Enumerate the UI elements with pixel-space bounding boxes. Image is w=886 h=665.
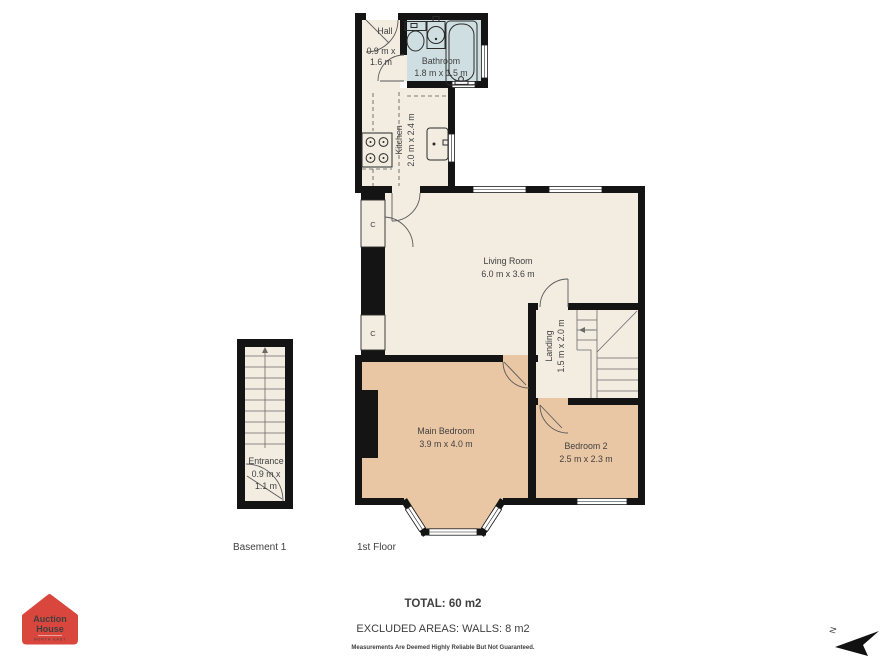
living-room-window-2 [549, 186, 602, 192]
sink-icon [427, 17, 445, 49]
toilet-icon [405, 22, 426, 52]
floorplan-drawing: C C [0, 0, 886, 665]
entrance-label: Entrance [248, 456, 283, 466]
logo-line1: Auction [33, 614, 67, 624]
landing-dims: 1.5 m x 2.0 m [556, 319, 566, 372]
floorplan-page: C C [0, 0, 886, 665]
basement-floor-label: Basement 1 [233, 542, 287, 553]
kitchen-dims: 2.0 m x 2.4 m [406, 113, 416, 166]
main-bedroom-dims: 3.9 m x 4.0 m [419, 439, 472, 449]
cupboard-1-label: C [370, 220, 376, 229]
north-compass: N [827, 626, 879, 656]
bedroom2-window [577, 498, 627, 504]
living-room-dims: 6.0 m x 3.6 m [481, 269, 534, 279]
auction-house-logo: Auction House NORTH EAST [24, 596, 76, 643]
bay-window-front [429, 529, 477, 535]
bathroom-label: Bathroom [422, 56, 460, 66]
bay-window [404, 498, 503, 535]
logo-line2: House [36, 624, 64, 634]
kitchen-label: Kitchen [394, 125, 404, 154]
kitchen-sink-icon [427, 128, 448, 160]
summary-text: TOTAL: 60 m2 EXCLUDED AREAS: WALLS: 8 m2… [351, 598, 534, 651]
logo-region: NORTH EAST [34, 638, 66, 642]
excluded-areas-text: EXCLUDED AREAS: WALLS: 8 m2 [356, 623, 529, 635]
floor-labels: Basement 1 1st Floor [233, 542, 397, 553]
first-floor-label: 1st Floor [357, 542, 397, 553]
hall-dims-1: 0.9 m x [367, 46, 396, 56]
bathroom-dims: 1.8 m x 1.5 m [414, 68, 467, 78]
hall-label: Hall [377, 26, 392, 36]
entrance-dims-1: 0.9 m x [252, 469, 281, 479]
bathroom-window [481, 45, 487, 78]
entrance-dims-2: 1.1 m [255, 481, 277, 491]
bedroom2-floor [536, 405, 638, 498]
hall-dims-2: 1.6 m [370, 57, 392, 67]
stove-icon [362, 133, 392, 167]
landing-label: Landing [544, 330, 554, 361]
disclaimer-text: Measurements Are Deemed Highly Reliable … [351, 645, 534, 651]
north-label: N [827, 626, 838, 635]
north-arrow-icon [835, 631, 879, 656]
kitchen-window [448, 134, 454, 162]
living-room-label: Living Room [484, 256, 533, 266]
bedroom2-dims: 2.5 m x 2.3 m [559, 454, 612, 464]
total-area-text: TOTAL: 60 m2 [405, 598, 482, 610]
bedroom2-label: Bedroom 2 [564, 441, 607, 451]
cupboard-2-label: C [370, 329, 376, 338]
main-bedroom-label: Main Bedroom [417, 426, 474, 436]
living-room-window-1 [473, 186, 526, 192]
